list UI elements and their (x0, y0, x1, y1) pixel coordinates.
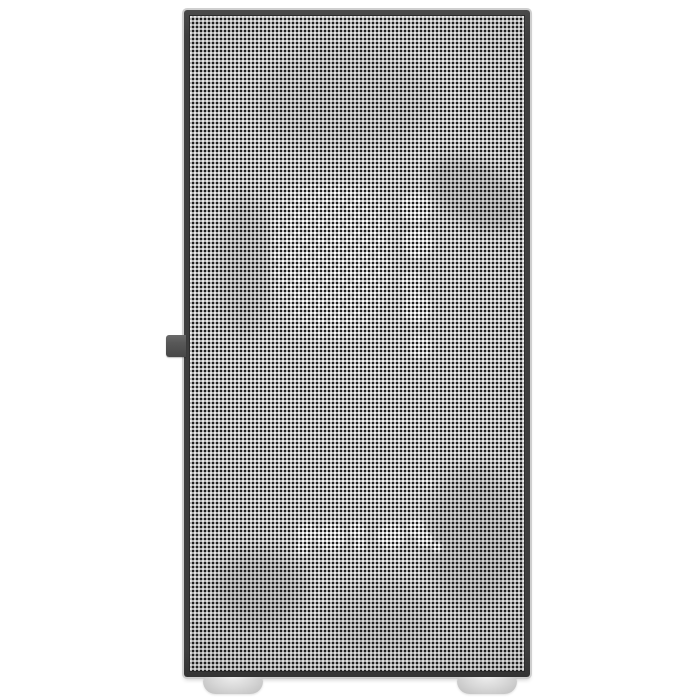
pc-case (184, 10, 530, 677)
case-foot-right (457, 677, 517, 694)
mesh-dot-pattern (190, 16, 524, 671)
case-foot-left (203, 677, 263, 694)
front-mesh-panel (190, 16, 524, 671)
side-panel-latch-tab (166, 335, 186, 357)
product-photo (0, 0, 700, 700)
